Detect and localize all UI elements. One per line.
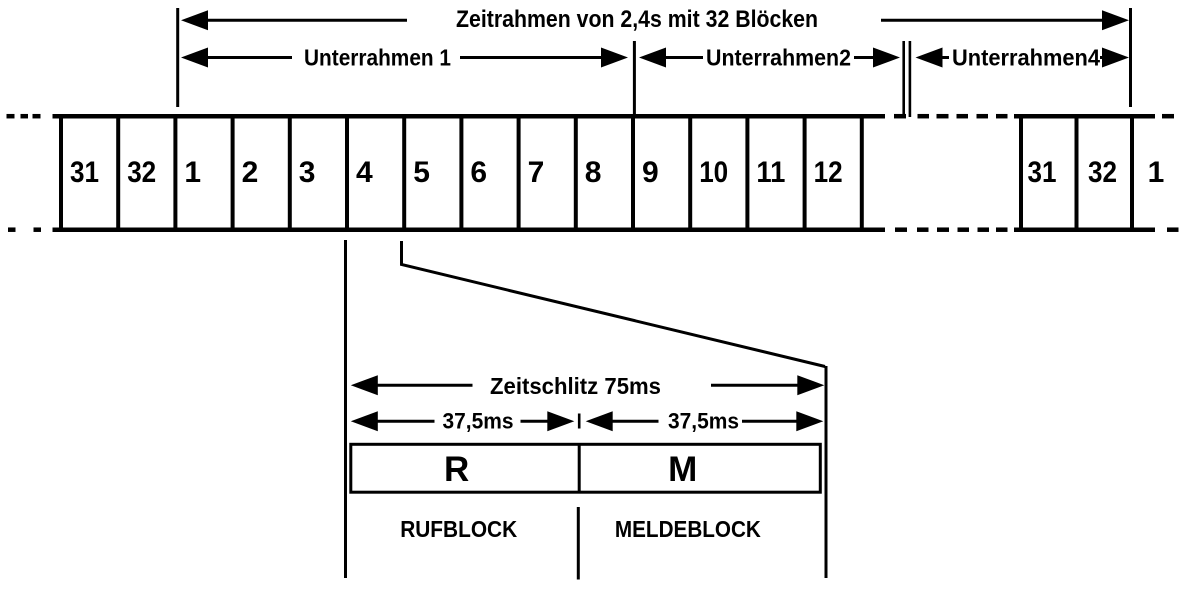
svg-text:8: 8 bbox=[585, 156, 602, 189]
svg-text:5: 5 bbox=[413, 156, 430, 189]
svg-text:6: 6 bbox=[470, 156, 487, 189]
svg-text:11: 11 bbox=[756, 156, 785, 189]
svg-text:Unterrahmen4: Unterrahmen4 bbox=[952, 45, 1100, 71]
svg-text:1: 1 bbox=[1148, 156, 1165, 189]
svg-text:Unterrahmen 1: Unterrahmen 1 bbox=[304, 45, 451, 71]
svg-text:Zeitrahmen von 2,4s mit 32 Blö: Zeitrahmen von 2,4s mit 32 Blöcken bbox=[456, 6, 818, 33]
svg-text:Zeitschlitz 75ms: Zeitschlitz 75ms bbox=[490, 373, 661, 399]
svg-text:M: M bbox=[668, 450, 697, 489]
svg-text:RUFBLOCK: RUFBLOCK bbox=[400, 516, 517, 542]
svg-text:9: 9 bbox=[642, 156, 659, 189]
svg-text:2: 2 bbox=[242, 156, 259, 189]
svg-text:31: 31 bbox=[70, 156, 99, 189]
svg-text:12: 12 bbox=[814, 156, 843, 189]
svg-text:37,5ms: 37,5ms bbox=[443, 409, 514, 434]
svg-text:R: R bbox=[444, 450, 469, 489]
svg-text:10: 10 bbox=[699, 156, 728, 189]
svg-text:1: 1 bbox=[184, 156, 201, 189]
svg-text:31: 31 bbox=[1028, 156, 1057, 189]
svg-text:37,5ms: 37,5ms bbox=[668, 409, 739, 434]
svg-text:Unterrahmen2: Unterrahmen2 bbox=[706, 45, 851, 71]
svg-text:7: 7 bbox=[528, 156, 545, 189]
svg-text:32: 32 bbox=[127, 156, 156, 189]
svg-text:3: 3 bbox=[299, 156, 316, 189]
svg-text:4: 4 bbox=[356, 156, 373, 189]
svg-text:32: 32 bbox=[1088, 156, 1117, 189]
svg-text:MELDEBLOCK: MELDEBLOCK bbox=[615, 516, 761, 542]
